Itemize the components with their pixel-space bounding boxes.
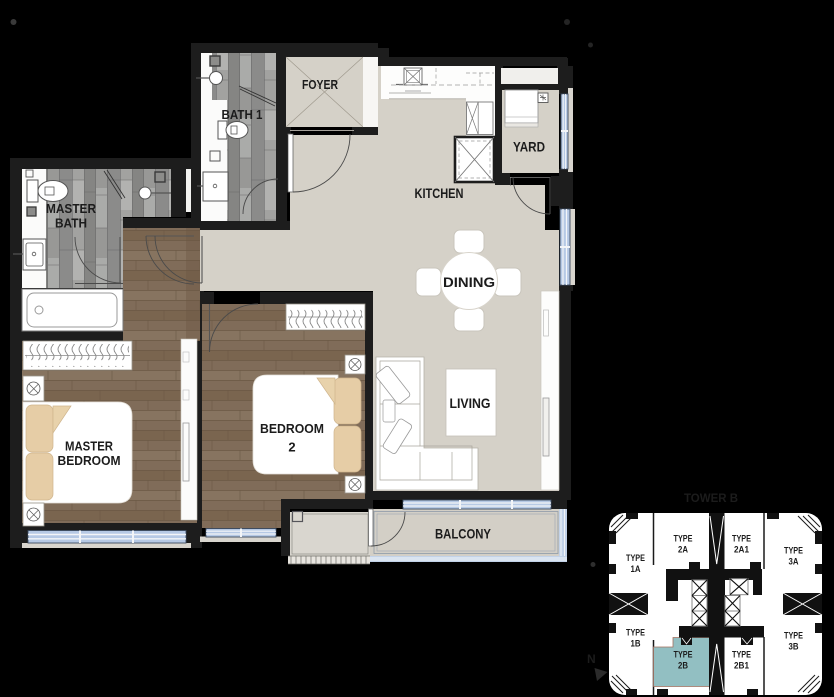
svg-text:KITCHEN: KITCHEN <box>415 185 464 201</box>
svg-text:TYPE: TYPE <box>784 546 803 557</box>
svg-text:BALCONY: BALCONY <box>435 526 492 542</box>
svg-text:BEDROOM: BEDROOM <box>58 453 121 468</box>
svg-text:1B: 1B <box>631 639 641 650</box>
svg-text:YARD: YARD <box>513 139 545 155</box>
svg-text:TYPE: TYPE <box>784 631 803 642</box>
svg-text:MASTER: MASTER <box>46 201 97 216</box>
svg-text:2B: 2B <box>678 661 688 672</box>
svg-text:TOWER B: TOWER B <box>684 491 738 505</box>
svg-text:BATH 1: BATH 1 <box>222 107 263 122</box>
svg-text:MASTER: MASTER <box>65 439 114 454</box>
svg-text:2B1: 2B1 <box>734 661 750 672</box>
svg-text:N: N <box>587 652 596 666</box>
svg-text:1A: 1A <box>631 564 641 575</box>
svg-text:TYPE: TYPE <box>626 628 645 639</box>
svg-text:TYPE: TYPE <box>732 534 751 545</box>
svg-text:TYPE: TYPE <box>674 650 693 661</box>
svg-text:DINING: DINING <box>443 274 495 290</box>
svg-text:TYPE: TYPE <box>626 553 645 564</box>
svg-text:2: 2 <box>288 440 295 455</box>
svg-text:3A: 3A <box>789 557 799 568</box>
svg-text:2A: 2A <box>678 545 688 556</box>
svg-text:BATH: BATH <box>55 216 87 231</box>
svg-text:2A1: 2A1 <box>734 545 750 556</box>
svg-text:3B: 3B <box>789 642 799 653</box>
svg-text:FOYER: FOYER <box>302 77 338 92</box>
svg-text:TYPE: TYPE <box>674 534 693 545</box>
svg-text:BEDROOM: BEDROOM <box>260 421 324 436</box>
svg-text:TYPE: TYPE <box>732 650 751 661</box>
svg-text:LIVING: LIVING <box>450 395 491 411</box>
